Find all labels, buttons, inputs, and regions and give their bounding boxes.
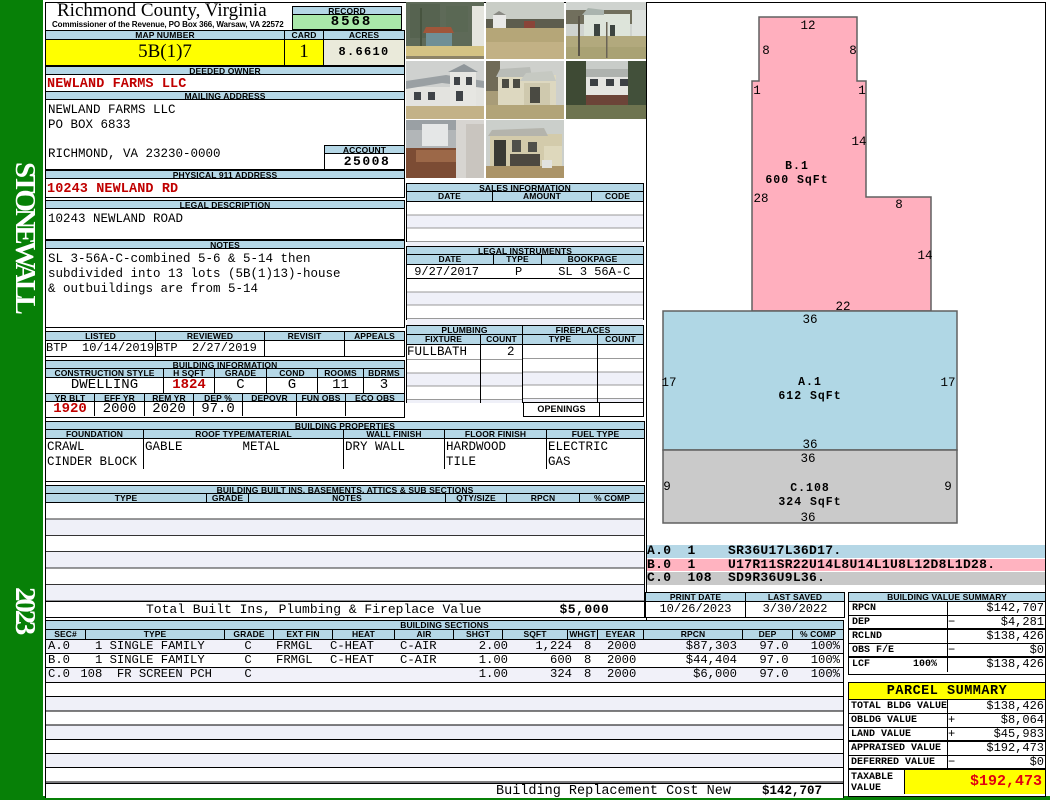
svg-text:17: 17	[661, 376, 676, 390]
svg-text:8: 8	[762, 44, 770, 58]
svg-text:36: 36	[800, 511, 815, 525]
svg-text:1: 1	[753, 84, 761, 98]
svg-text:600 SqFt: 600 SqFt	[765, 174, 828, 187]
svg-text:324 SqFt: 324 SqFt	[778, 496, 841, 509]
svg-text:17: 17	[940, 376, 955, 390]
svg-text:612 SqFt: 612 SqFt	[778, 390, 841, 403]
svg-text:28: 28	[753, 192, 768, 206]
svg-text:C.108: C.108	[790, 482, 830, 495]
svg-text:A.1: A.1	[798, 376, 822, 389]
svg-text:22: 22	[835, 300, 850, 314]
svg-text:8: 8	[895, 198, 903, 212]
svg-text:8: 8	[849, 44, 857, 58]
svg-text:12: 12	[800, 19, 815, 33]
svg-text:36: 36	[802, 438, 817, 452]
svg-text:1: 1	[858, 84, 866, 98]
svg-text:14: 14	[851, 135, 866, 149]
svg-text:36: 36	[800, 452, 815, 466]
svg-text:B.1: B.1	[785, 160, 809, 173]
svg-text:36: 36	[802, 313, 817, 327]
svg-text:9: 9	[663, 480, 671, 494]
svg-text:14: 14	[917, 249, 932, 263]
svg-text:9: 9	[944, 480, 952, 494]
